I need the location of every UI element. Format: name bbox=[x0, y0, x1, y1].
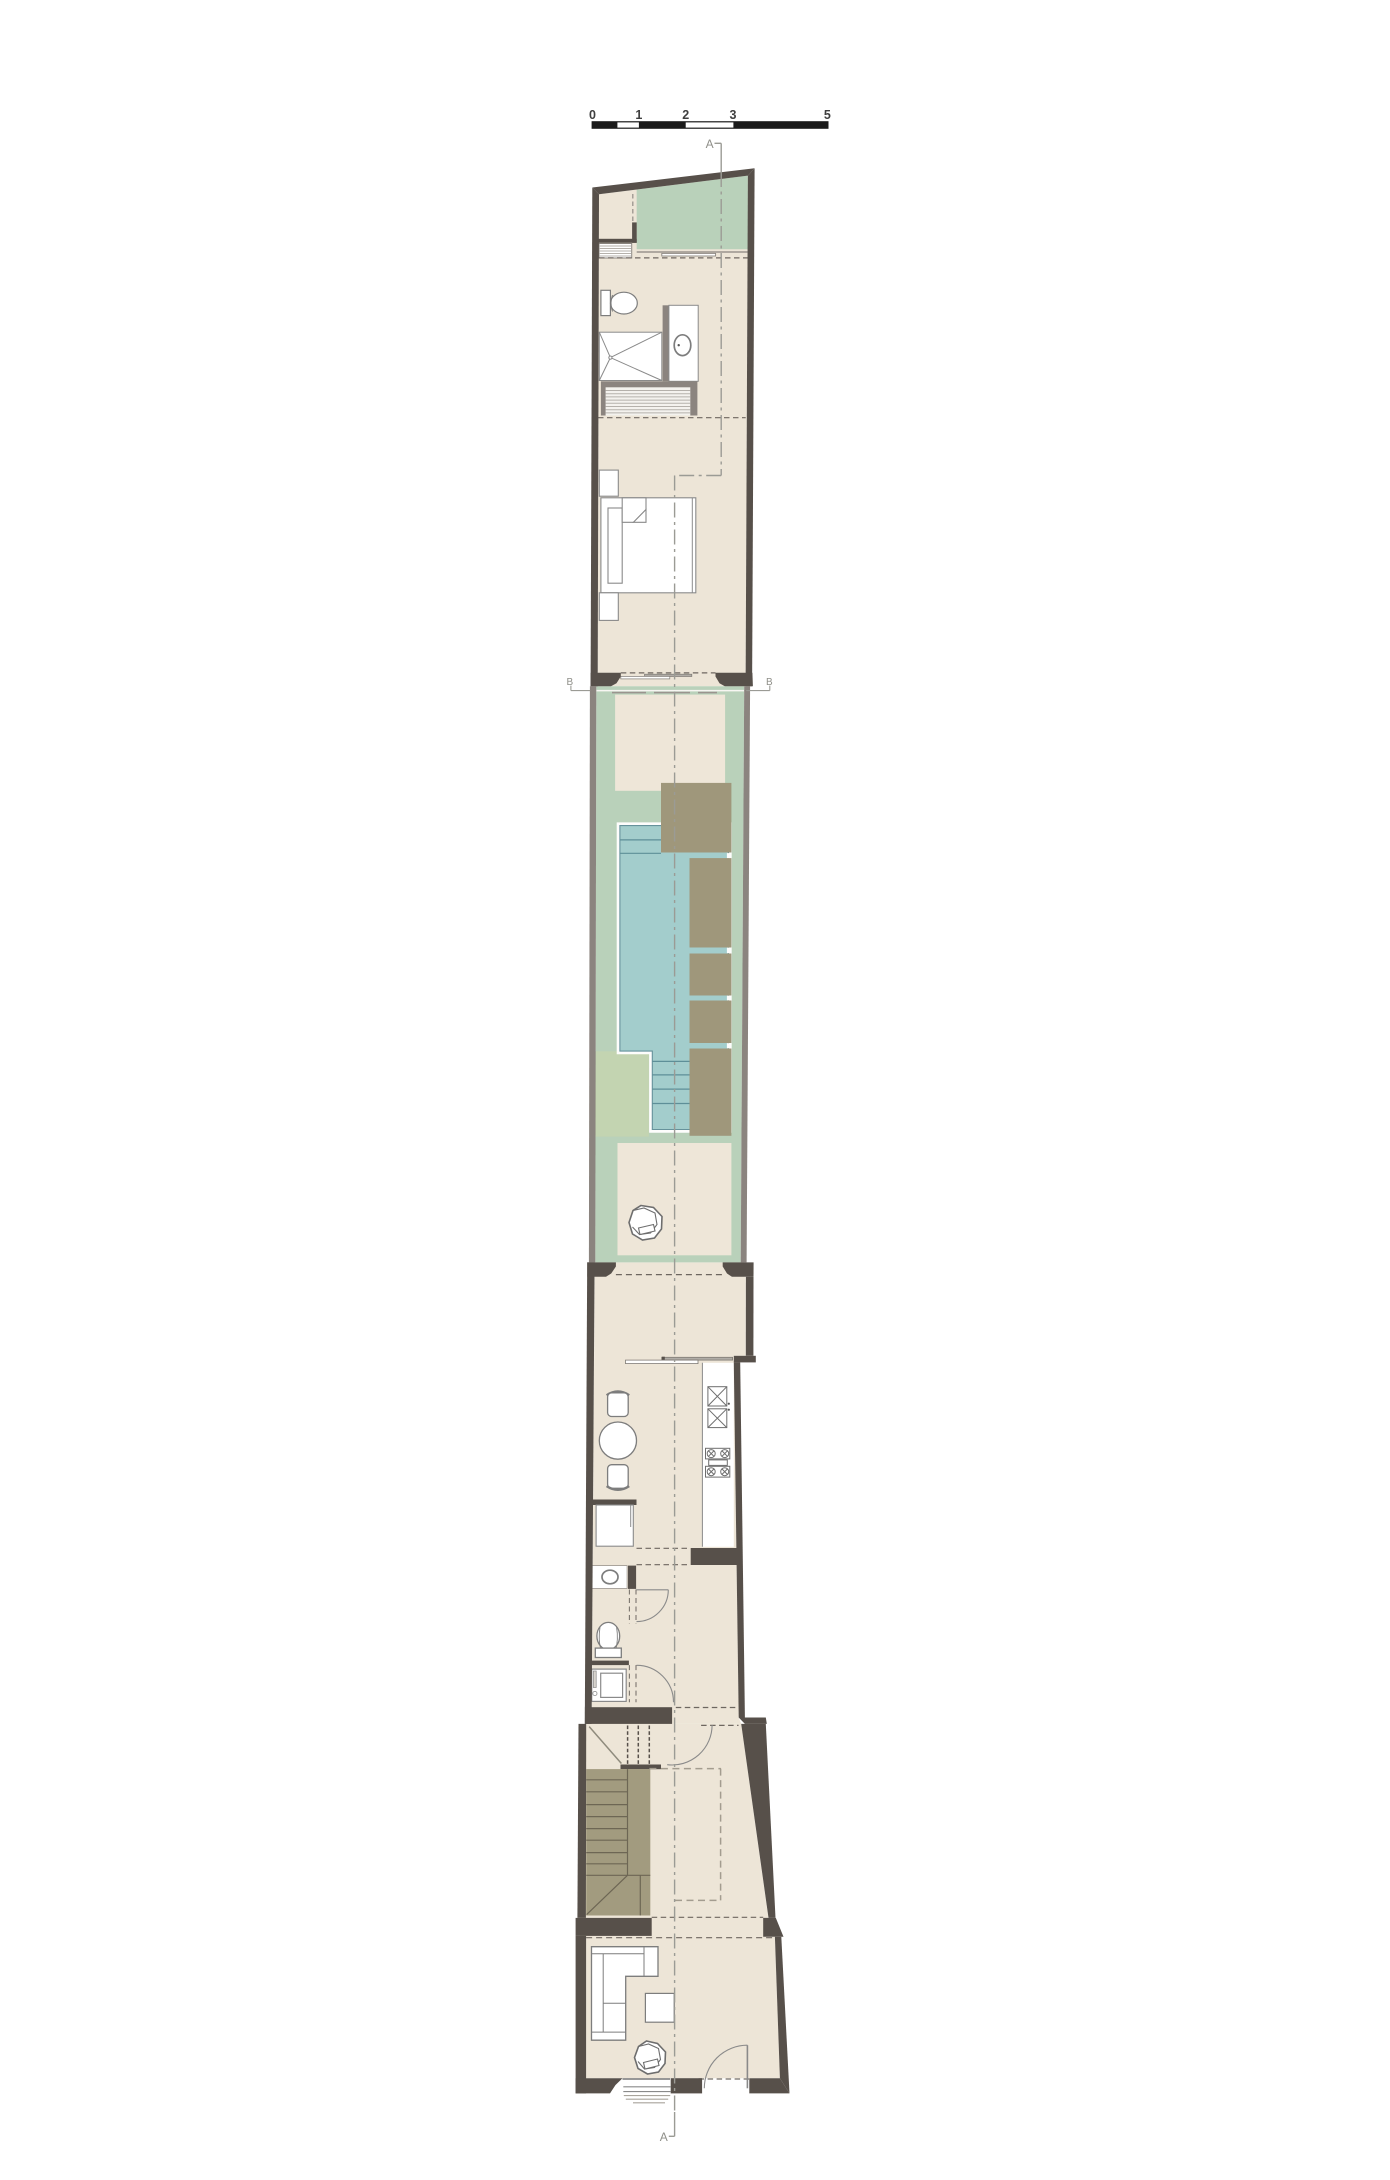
svg-text:A: A bbox=[706, 137, 714, 151]
svg-text:B: B bbox=[566, 677, 573, 688]
svg-text:0: 0 bbox=[589, 108, 596, 122]
svg-text:1: 1 bbox=[635, 108, 642, 122]
svg-text:3: 3 bbox=[730, 108, 737, 122]
svg-text:A: A bbox=[660, 2130, 668, 2144]
svg-text:B: B bbox=[766, 677, 773, 688]
svg-text:5: 5 bbox=[824, 108, 831, 122]
svg-text:2: 2 bbox=[682, 108, 689, 122]
